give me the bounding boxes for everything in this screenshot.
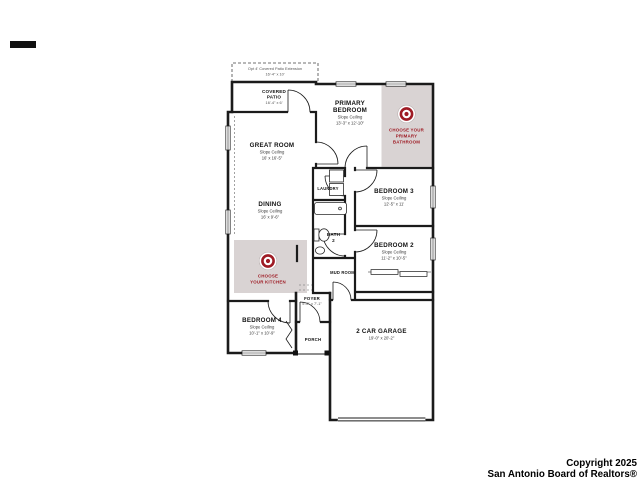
kitchen-callout-1: CHOOSE — [258, 274, 278, 279]
dining-dims: 16' x 9'-6" — [261, 215, 280, 220]
garage-dims: 19'-0" x 20'-2" — [369, 336, 395, 341]
sink — [315, 247, 324, 254]
primary-bath-target-icon — [398, 105, 416, 123]
great-room-dims: 16' x 16'-5" — [262, 156, 283, 161]
covered-patio-dims: 16'-4" x 6' — [266, 100, 283, 105]
bath2-label: BATH — [327, 232, 341, 237]
garage-label: 2 CAR GARAGE — [356, 328, 406, 335]
garage-door — [338, 417, 426, 424]
primary-bedroom-label: PRIMARY — [335, 100, 366, 107]
great-room-ceiling: Slope Ceiling — [260, 150, 285, 155]
bedroom4-closet-doors — [286, 321, 292, 348]
bedroom3-dims: 12'-5" x 11' — [384, 202, 404, 207]
washer — [330, 170, 344, 182]
bathtub — [315, 203, 347, 215]
primary-bath-callout-2: PRIMARY — [396, 134, 417, 139]
floor-plan-page: Opt 4' Covered Patio Extension 16'-4" x … — [0, 0, 640, 480]
mud-room-label: MUD ROOM — [330, 270, 355, 275]
bedroom4-ceiling: Slope Ceiling — [250, 325, 275, 330]
bedroom2-dims: 11'-2" x 10'-5" — [381, 256, 407, 261]
copyright-line2: San Antonio Board of Realtors® — [488, 469, 638, 480]
bedroom2-closet-doors — [368, 270, 431, 277]
laundry-label: LAUNDRY — [317, 186, 338, 191]
primary-bath-callout-1: CHOOSE YOUR — [389, 128, 425, 133]
porch-label: PORCH — [305, 337, 322, 342]
optional-patio-label: Opt 4' Covered Patio Extension — [248, 66, 302, 71]
bedroom2-label: BEDROOM 2 — [374, 242, 414, 249]
bedroom4-dims: 10'-1" x 10'-9" — [249, 331, 275, 336]
covered-patio-label: COVERED — [262, 89, 287, 94]
dining-label: DINING — [258, 201, 281, 208]
kitchen-callout-2: YOUR KITCHEN — [250, 280, 286, 285]
kitchen-target-icon — [259, 252, 277, 270]
bedroom4-label: BEDROOM 4 — [242, 317, 282, 324]
bedroom3-label: BEDROOM 3 — [374, 188, 414, 195]
top-left-mark — [10, 41, 36, 48]
dining-ceiling: Slope Ceiling — [258, 209, 283, 214]
foyer-dims: 5'-2" x 7'-1" — [302, 301, 322, 306]
floor-plan: Opt 4' Covered Patio Extension 16'-4" x … — [0, 0, 640, 480]
bedroom3-ceiling: Slope Ceiling — [382, 196, 407, 201]
primary-bedroom-ceiling: Slope Ceiling — [338, 115, 363, 120]
optional-patio-dims: 16'-4" x 10' — [265, 72, 284, 77]
bedroom2-ceiling: Slope Ceiling — [382, 250, 407, 255]
porch-post — [325, 351, 330, 356]
copyright-line1: Copyright 2025 — [566, 458, 637, 469]
primary-bath-option-zone — [382, 85, 432, 167]
primary-bedroom-label2: BEDROOM — [333, 107, 367, 114]
porch-post — [293, 351, 298, 356]
great-room-label: GREAT ROOM — [250, 142, 295, 149]
covered-patio-label2: PATIO — [267, 95, 282, 100]
bath2-label2: 2 — [332, 238, 335, 243]
primary-bath-callout-3: BATHROOM — [393, 140, 420, 145]
primary-bedroom-dims: 13'-3" x 12'-10" — [336, 121, 365, 126]
